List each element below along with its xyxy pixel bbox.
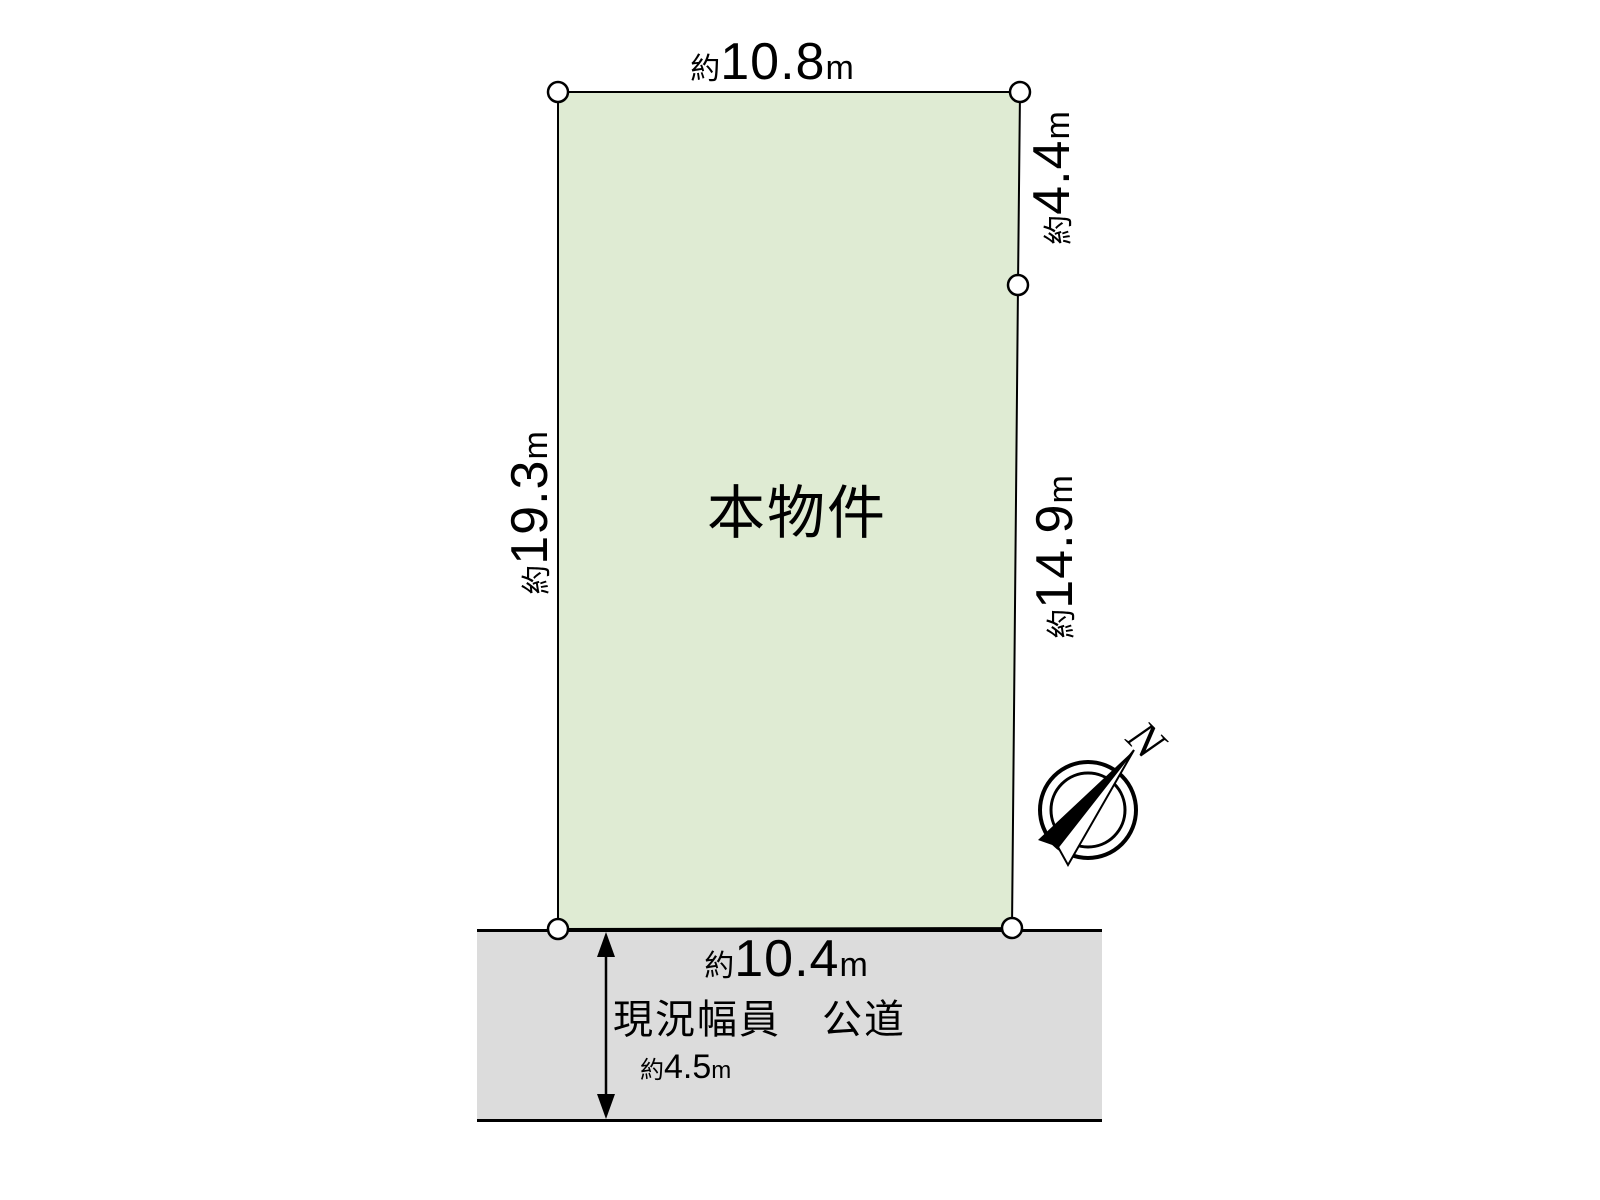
dimension-prefix: 約 (640, 1057, 664, 1084)
dimension-value: 10.8 (720, 33, 825, 91)
dimension-prefix: 約 (704, 950, 734, 983)
vertex-marker (1002, 918, 1022, 938)
dimension-left-label: 約19.3m (504, 431, 556, 595)
dimension-bottom-label: 約10.4m (704, 933, 868, 985)
vertex-marker (548, 82, 568, 102)
dimension-unit: m (825, 49, 853, 87)
vertex-marker (548, 919, 568, 939)
dimension-unit: m (517, 431, 555, 459)
dimension-value: 14.9 (1026, 504, 1084, 609)
dimension-right-lower-label: 約14.9m (1029, 475, 1081, 639)
dimension-unit: m (839, 946, 867, 984)
dimension-prefix: 約 (690, 53, 720, 86)
road-type-label: 公道 (822, 1000, 906, 1040)
dimension-prefix: 約 (1046, 609, 1079, 639)
dimension-prefix: 約 (1043, 215, 1076, 245)
dimension-value: 4.5 (664, 1048, 711, 1086)
compass: N (1038, 710, 1177, 865)
dimension-prefix: 約 (521, 565, 554, 595)
road-current-width-label: 現況幅員 (613, 1000, 781, 1040)
dimension-value: 19.3 (501, 460, 559, 565)
property-name-label: 本物件 (707, 485, 887, 543)
vertex-marker (1008, 275, 1028, 295)
dimension-value: 10.4 (734, 930, 839, 988)
dimension-right-upper-label: 約4.4m (1026, 111, 1078, 245)
plot-diagram-svg: N (0, 0, 1600, 1200)
dimension-value: 4.4 (1023, 140, 1081, 215)
land-plot-diagram: N 約10.8m 約19.3m 約4.4m 約14.9m 約10.4m 本物件 … (0, 0, 1600, 1200)
dimension-unit: m (1039, 111, 1077, 139)
vertex-marker (1010, 82, 1030, 102)
dimension-unit: m (1042, 475, 1080, 503)
road-width-value-label: 約4.5m (640, 1050, 731, 1084)
dimension-top-label: 約10.8m (690, 36, 854, 88)
dimension-unit: m (711, 1057, 731, 1084)
